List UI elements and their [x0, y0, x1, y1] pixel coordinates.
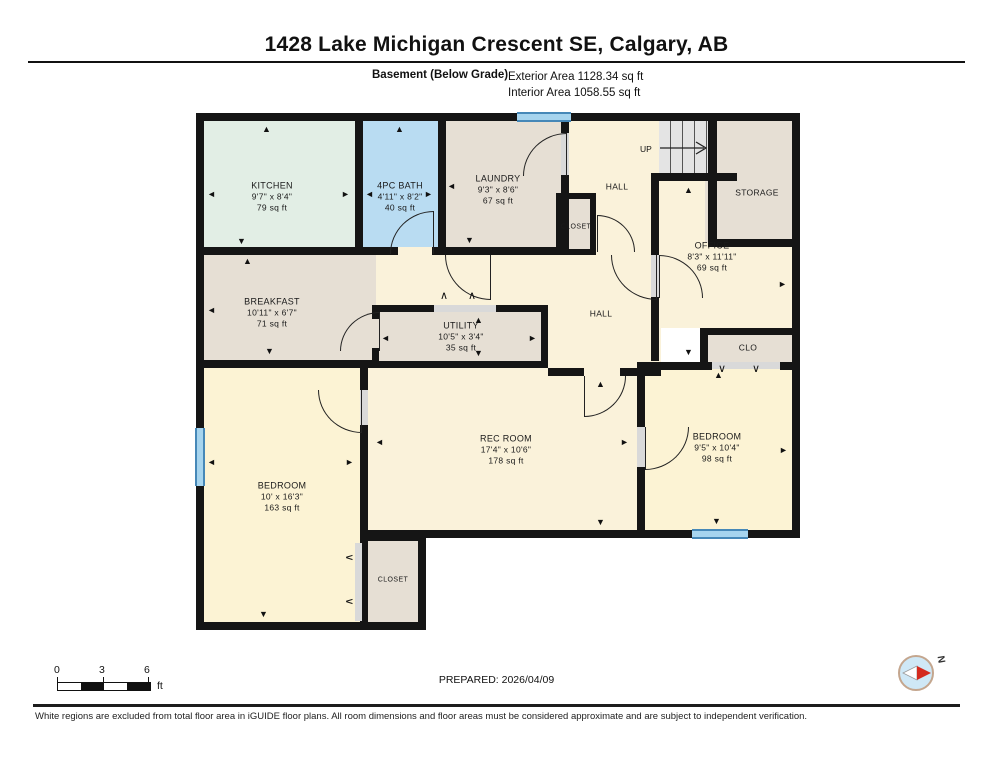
stairs-direction-arrow — [658, 140, 710, 156]
disclaimer-text: White regions are excluded from total fl… — [35, 711, 807, 722]
wall-segment — [651, 173, 737, 181]
dimension-arrow: ◄ — [365, 190, 374, 199]
dimension-arrow: ► — [779, 446, 788, 455]
bifold-chevron: ∧ — [468, 291, 476, 302]
wall-segment — [637, 467, 645, 538]
dimension-arrow: ► — [341, 190, 350, 199]
label-bedroom-left: BEDROOM 10' x 16'3" 163 sq ft — [258, 481, 307, 514]
dimension-arrow: ▼ — [259, 610, 268, 619]
wall-segment — [372, 361, 548, 368]
dimension-arrow: ► — [345, 458, 354, 467]
wall-segment — [196, 113, 800, 121]
label-laundry: LAUNDRY 9'3" x 8'6" 67 sq ft — [476, 174, 521, 207]
dimension-arrow: ▲ — [395, 125, 404, 134]
bifold-door-leaf — [434, 305, 496, 312]
bifold-chevron: ∨ — [752, 364, 760, 375]
dimension-arrow: ◄ — [447, 182, 456, 191]
label-hall-mid: HALL — [590, 309, 612, 320]
wall-segment — [438, 121, 446, 247]
bifold-chevron: ∧ — [345, 553, 356, 561]
prepared-date: PREPARED: 2026/04/09 — [0, 674, 993, 686]
dimension-arrow: ► — [778, 280, 787, 289]
dimension-arrow: ► — [528, 334, 537, 343]
dimension-arrow: ▼ — [684, 348, 693, 357]
dimension-arrow: ▲ — [474, 316, 483, 325]
footer-divider — [33, 704, 960, 707]
wall-segment — [355, 121, 363, 247]
dimension-arrow: ▼ — [596, 518, 605, 527]
label-bath: 4PC BATH 4'11" x 8'2" 40 sq ft — [377, 181, 423, 214]
dimension-arrow: ◄ — [375, 438, 384, 447]
window — [195, 428, 205, 486]
label-breakfast: BREAKFAST 10'11" x 6'7" 71 sq ft — [244, 297, 300, 330]
dimension-arrow: ▼ — [465, 236, 474, 245]
wall-segment — [780, 362, 800, 370]
dimension-arrow: ▼ — [265, 347, 274, 356]
label-office: OFFICE 8'3" x 11'11" 69 sq ft — [687, 241, 736, 274]
interior-area: Interior Area 1058.55 sq ft — [508, 85, 643, 101]
wall-segment — [651, 297, 659, 361]
wall-segment — [541, 305, 548, 368]
label-bedroom-right: BEDROOM 9'5" x 10'4" 98 sq ft — [693, 432, 742, 465]
wall-segment — [372, 348, 379, 368]
bifold-chevron: ∧ — [345, 597, 356, 605]
label-closet-bottom: CLOSET — [378, 575, 408, 586]
dimension-arrow: ▼ — [712, 517, 721, 526]
room-storage — [705, 121, 792, 243]
window — [692, 529, 748, 539]
door-leaf — [637, 427, 645, 467]
window — [517, 112, 571, 122]
wall-segment — [196, 113, 204, 630]
label-closet-top: CLOSET — [561, 222, 591, 233]
dimension-arrow: ◄ — [207, 306, 216, 315]
wall-segment — [196, 247, 398, 255]
floorplan-page: 1428 Lake Michigan Crescent SE, Calgary,… — [0, 0, 993, 768]
floor-label: Basement (Below Grade) — [372, 69, 508, 81]
wall-segment — [700, 328, 792, 335]
header-divider — [28, 61, 965, 63]
dimension-arrow: ▼ — [474, 349, 483, 358]
dimension-arrow: ▲ — [262, 125, 271, 134]
wall-segment — [418, 533, 426, 630]
wall-segment — [360, 368, 368, 390]
wall-segment — [196, 360, 376, 368]
area-summary: Exterior Area 1128.34 sq ft Interior Are… — [508, 69, 643, 101]
wall-segment — [651, 181, 659, 255]
dimension-arrow: ▲ — [243, 257, 252, 266]
dimension-arrow: ► — [424, 190, 433, 199]
wall-segment — [561, 175, 569, 255]
wall-segment — [372, 305, 434, 312]
stairs-up-label: UP — [640, 144, 652, 154]
label-rec-room: REC ROOM 17'4" x 10'6" 178 sq ft — [480, 434, 532, 467]
dimension-arrow: ▲ — [684, 186, 693, 195]
dimension-arrow: ▲ — [596, 380, 605, 389]
bifold-chevron: ∧ — [440, 291, 448, 302]
wall-segment — [361, 533, 426, 541]
dimension-arrow: ◄ — [207, 190, 216, 199]
label-hall-top: HALL — [606, 182, 628, 193]
wall-segment — [561, 121, 569, 133]
compass-icon: N — [896, 652, 956, 698]
dimension-arrow: ▲ — [714, 371, 723, 380]
wall-segment — [432, 247, 561, 255]
label-kitchen: KITCHEN 9'7" x 8'4" 79 sq ft — [251, 181, 293, 214]
wall-segment — [196, 622, 426, 630]
label-clo: CLO — [739, 343, 757, 354]
compass-north-label: N — [935, 655, 947, 664]
dimension-arrow: ◄ — [207, 458, 216, 467]
dimension-arrow: ▼ — [237, 237, 246, 246]
label-storage: STORAGE — [735, 188, 779, 199]
exterior-area: Exterior Area 1128.34 sq ft — [508, 69, 643, 85]
wall-segment — [792, 113, 800, 538]
wall-segment — [548, 368, 584, 376]
dimension-arrow: ◄ — [381, 334, 390, 343]
dimension-arrow: ► — [620, 438, 629, 447]
wall-segment — [637, 368, 645, 427]
page-title: 1428 Lake Michigan Crescent SE, Calgary,… — [0, 33, 993, 57]
bifold-door-leaf — [355, 543, 362, 621]
